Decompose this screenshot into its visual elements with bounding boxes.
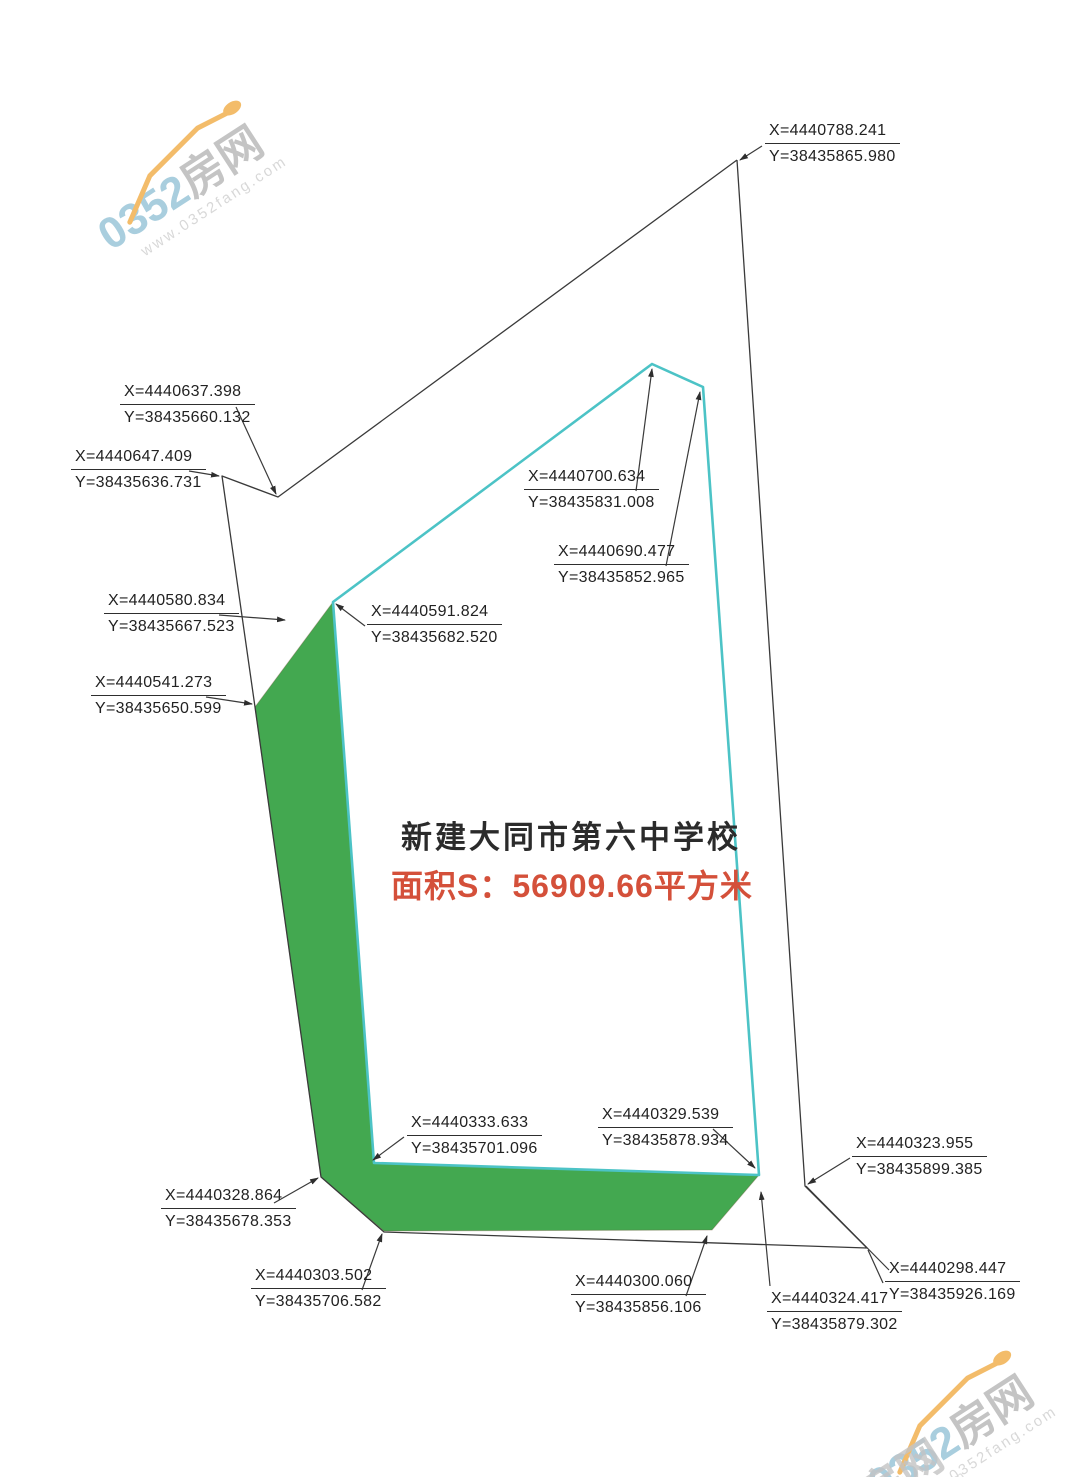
- survey-plan-page: X=4440788.241Y=38435865.980X=4440637.398…: [0, 0, 1080, 1477]
- leader-line-pt-4440329: [713, 1129, 755, 1168]
- green-buffer-band: [255, 602, 759, 1231]
- parcel-boundary-cyan: [333, 364, 759, 1175]
- leader-line-pt-4440324: [761, 1192, 770, 1286]
- leader-line-pt-4440580: [219, 615, 285, 620]
- leader-line-pt-4440298: [868, 1250, 883, 1283]
- leader-line-pt-4440647: [189, 471, 219, 476]
- project-title: 新建大同市第六中学校: [401, 812, 741, 857]
- leader-line-pt-4440637: [236, 407, 276, 494]
- leader-line-pt-4440591: [336, 604, 365, 626]
- leader-line-pt-4440303: [362, 1234, 382, 1290]
- leader-line-pt-4440700: [636, 369, 652, 491]
- leader-line-pt-4440333: [373, 1137, 404, 1160]
- leader-line-pt-4440323: [808, 1158, 850, 1184]
- leader-line-pt-4440788: [740, 146, 762, 160]
- leader-line-pt-4440328: [274, 1178, 318, 1203]
- parcel-map-canvas: [0, 0, 1080, 1477]
- leader-line-pt-4440300: [686, 1236, 707, 1296]
- leader-line-pt-4440541: [206, 697, 252, 704]
- parcel-area-text: 面积S：56909.66平方米: [391, 861, 753, 907]
- boundary-extension-line: [806, 1186, 889, 1270]
- leader-line-pt-4440690: [666, 392, 700, 566]
